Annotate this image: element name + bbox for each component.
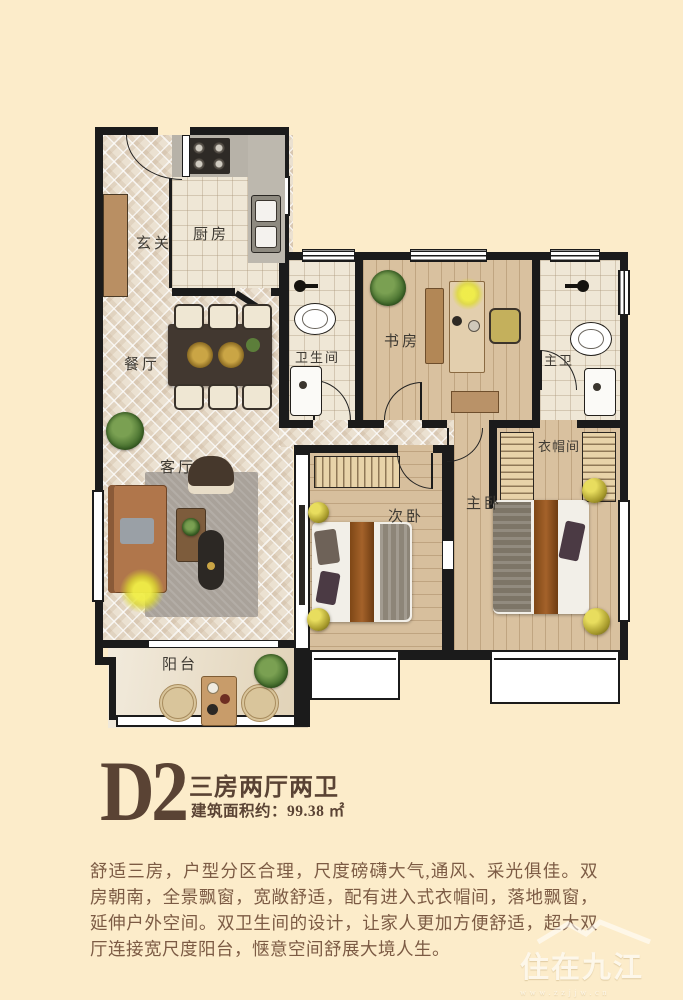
room-label-balcony: 阳台 bbox=[162, 653, 198, 674]
wall-segment bbox=[294, 648, 310, 727]
bed-pillow bbox=[314, 529, 341, 566]
bed-runner bbox=[534, 500, 558, 614]
wall-segment bbox=[172, 288, 235, 296]
bay-window-sill bbox=[314, 658, 396, 660]
room-label-bathroom: 卫生间 bbox=[295, 347, 340, 366]
toilet bbox=[570, 322, 612, 356]
plan-area-label: 建筑面积约： bbox=[191, 803, 287, 820]
bed-duvet bbox=[380, 524, 410, 620]
dining-chair bbox=[242, 304, 272, 330]
wall-segment bbox=[487, 252, 550, 260]
wall-segment bbox=[422, 420, 447, 428]
tray-cup bbox=[207, 704, 218, 715]
tray-plate bbox=[207, 682, 219, 694]
wardrobe-rack bbox=[314, 456, 400, 488]
table-accent bbox=[207, 562, 215, 570]
master-bath-sink bbox=[584, 368, 616, 416]
rattan-cushion bbox=[241, 684, 279, 722]
wall-segment bbox=[95, 127, 103, 490]
room-label-dining: 餐厅 bbox=[124, 353, 160, 374]
wall-segment bbox=[109, 665, 116, 720]
master-bedroom-east-window bbox=[618, 500, 630, 622]
rattan-cushion bbox=[159, 684, 197, 722]
bathroom-top-window bbox=[302, 249, 355, 262]
wall-segment bbox=[294, 445, 398, 453]
wall-segment bbox=[400, 650, 490, 660]
bed-duvet bbox=[493, 502, 531, 612]
sofa-pillow bbox=[120, 518, 154, 544]
plan-area-value: 99.38 ㎡ bbox=[287, 803, 345, 820]
stove bbox=[188, 138, 230, 174]
room-label-living: 客厅 bbox=[160, 456, 196, 477]
wall-segment bbox=[103, 640, 148, 648]
plan-code: D2 bbox=[100, 748, 185, 834]
dining-dish bbox=[187, 342, 213, 368]
wall-niche bbox=[442, 540, 454, 570]
entry-cabinet bbox=[103, 194, 128, 297]
shower-arm bbox=[304, 284, 318, 288]
bedside-lamp bbox=[307, 608, 330, 631]
master-bath-top-window bbox=[550, 249, 600, 262]
bedside-lamp bbox=[583, 608, 610, 635]
sink-basin bbox=[255, 200, 277, 222]
master-bath-east-window bbox=[618, 270, 630, 315]
study-sideboard bbox=[451, 391, 499, 413]
watermark: 住在九江 www.zzjjw.cn bbox=[520, 918, 680, 997]
wall-segment bbox=[532, 260, 540, 420]
floor-lamp-glow bbox=[120, 569, 164, 613]
study-top-window bbox=[410, 249, 487, 262]
bedside-lamp bbox=[582, 478, 607, 503]
desk-lamp-glow bbox=[452, 278, 484, 310]
room-label-second-bedroom: 次卧 bbox=[388, 505, 424, 526]
floorplan-drawing: 玄关 厨房 餐厅 客厅 卫生间 书房 主卫 衣帽间 次卧 主卧 阳台 bbox=[88, 110, 636, 738]
room-label-cloakroom: 衣帽间 bbox=[538, 436, 580, 455]
wall-segment bbox=[271, 288, 281, 296]
sink-basin bbox=[255, 226, 277, 248]
wall-segment bbox=[190, 127, 289, 135]
bookshelf bbox=[425, 288, 444, 364]
entry-door-leaf bbox=[182, 135, 190, 177]
dining-chair bbox=[174, 304, 204, 330]
plan-layout-type: 三房两厅两卫 bbox=[189, 767, 339, 802]
dining-dish bbox=[218, 342, 244, 368]
wall-segment bbox=[95, 602, 103, 657]
wall-segment bbox=[278, 640, 294, 648]
toilet bbox=[294, 303, 336, 335]
room-label-master-bedroom: 主卧 bbox=[466, 492, 502, 513]
dining-garnish bbox=[246, 338, 260, 352]
wall-segment bbox=[355, 260, 363, 420]
plant bbox=[370, 270, 406, 306]
dining-chair bbox=[174, 384, 204, 410]
desk-item bbox=[468, 320, 480, 332]
wall-segment bbox=[620, 650, 628, 660]
dining-chair bbox=[208, 384, 238, 410]
wall-segment bbox=[95, 127, 158, 135]
plant bbox=[254, 654, 288, 688]
room-label-entry: 玄关 bbox=[136, 232, 172, 253]
floorplan-brochure-page: 玄关 厨房 餐厅 客厅 卫生间 书房 主卫 衣帽间 次卧 主卧 阳台 D2 三房… bbox=[0, 0, 683, 1000]
bedside-lamp bbox=[308, 502, 329, 523]
watermark-name: 住在九江 bbox=[520, 944, 680, 986]
plant bbox=[106, 412, 144, 450]
wall-segment bbox=[355, 252, 410, 260]
tray-cup bbox=[220, 694, 230, 704]
tv-panel bbox=[299, 505, 305, 605]
living-west-window bbox=[92, 490, 104, 602]
wall-segment bbox=[489, 420, 540, 428]
balcony-tray-table bbox=[201, 676, 237, 726]
dining-chair bbox=[242, 384, 272, 410]
coffee-table-dark bbox=[198, 530, 224, 590]
bathroom-sink bbox=[290, 366, 322, 416]
dining-chair bbox=[208, 304, 238, 330]
watermark-url: www.zzjjw.cn bbox=[520, 987, 680, 997]
room-label-study: 书房 bbox=[384, 330, 420, 351]
balcony-sliding-door bbox=[148, 640, 280, 648]
bed-runner bbox=[350, 522, 374, 622]
bay-window-sill bbox=[494, 658, 616, 660]
room-label-kitchen: 厨房 bbox=[193, 223, 229, 244]
shower-arm bbox=[565, 284, 579, 288]
wall-segment bbox=[279, 420, 313, 428]
desk-item bbox=[452, 316, 462, 326]
study-chair bbox=[489, 308, 521, 344]
room-label-master-bath: 主卫 bbox=[544, 350, 574, 369]
plan-area: 建筑面积约：99.38 ㎡ bbox=[191, 799, 345, 821]
wardrobe-rack bbox=[500, 432, 534, 502]
house-roof-icon bbox=[534, 918, 654, 944]
wall-segment bbox=[348, 420, 384, 428]
table-plant bbox=[182, 518, 200, 536]
wall-segment bbox=[95, 657, 116, 665]
